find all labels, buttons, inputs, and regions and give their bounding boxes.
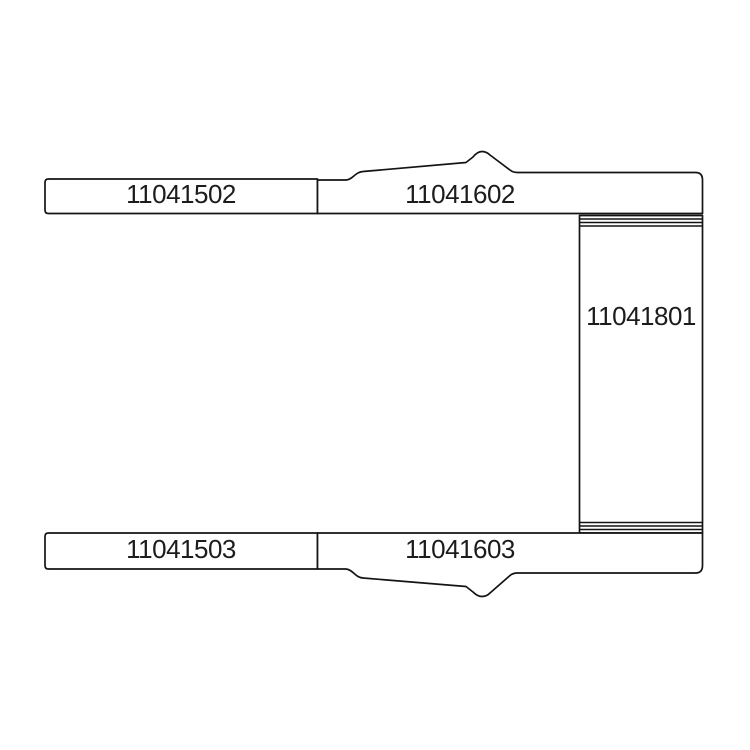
part-number-label: 11041801 (586, 301, 696, 331)
part-number-label: 11041603 (405, 534, 515, 564)
part-reinforcement-panel[interactable]: 11041801 (580, 216, 703, 534)
part-number-label: 11041502 (126, 179, 236, 209)
part-number-label: 11041602 (405, 179, 515, 209)
part-lower-rail-right[interactable]: 11041603 (318, 533, 703, 597)
diagram-canvas: 11041801 11041502 11041602 11041503 1104… (0, 0, 750, 750)
reinforcement-panel-outline (580, 216, 703, 534)
parts-diagram: 11041801 11041502 11041602 11041503 1104… (0, 0, 750, 750)
part-upper-rail-right[interactable]: 11041602 (318, 152, 703, 214)
part-lower-rail-left[interactable]: 11041503 (45, 533, 318, 569)
part-upper-rail-left[interactable]: 11041502 (45, 179, 318, 214)
part-number-label: 11041503 (126, 534, 236, 564)
